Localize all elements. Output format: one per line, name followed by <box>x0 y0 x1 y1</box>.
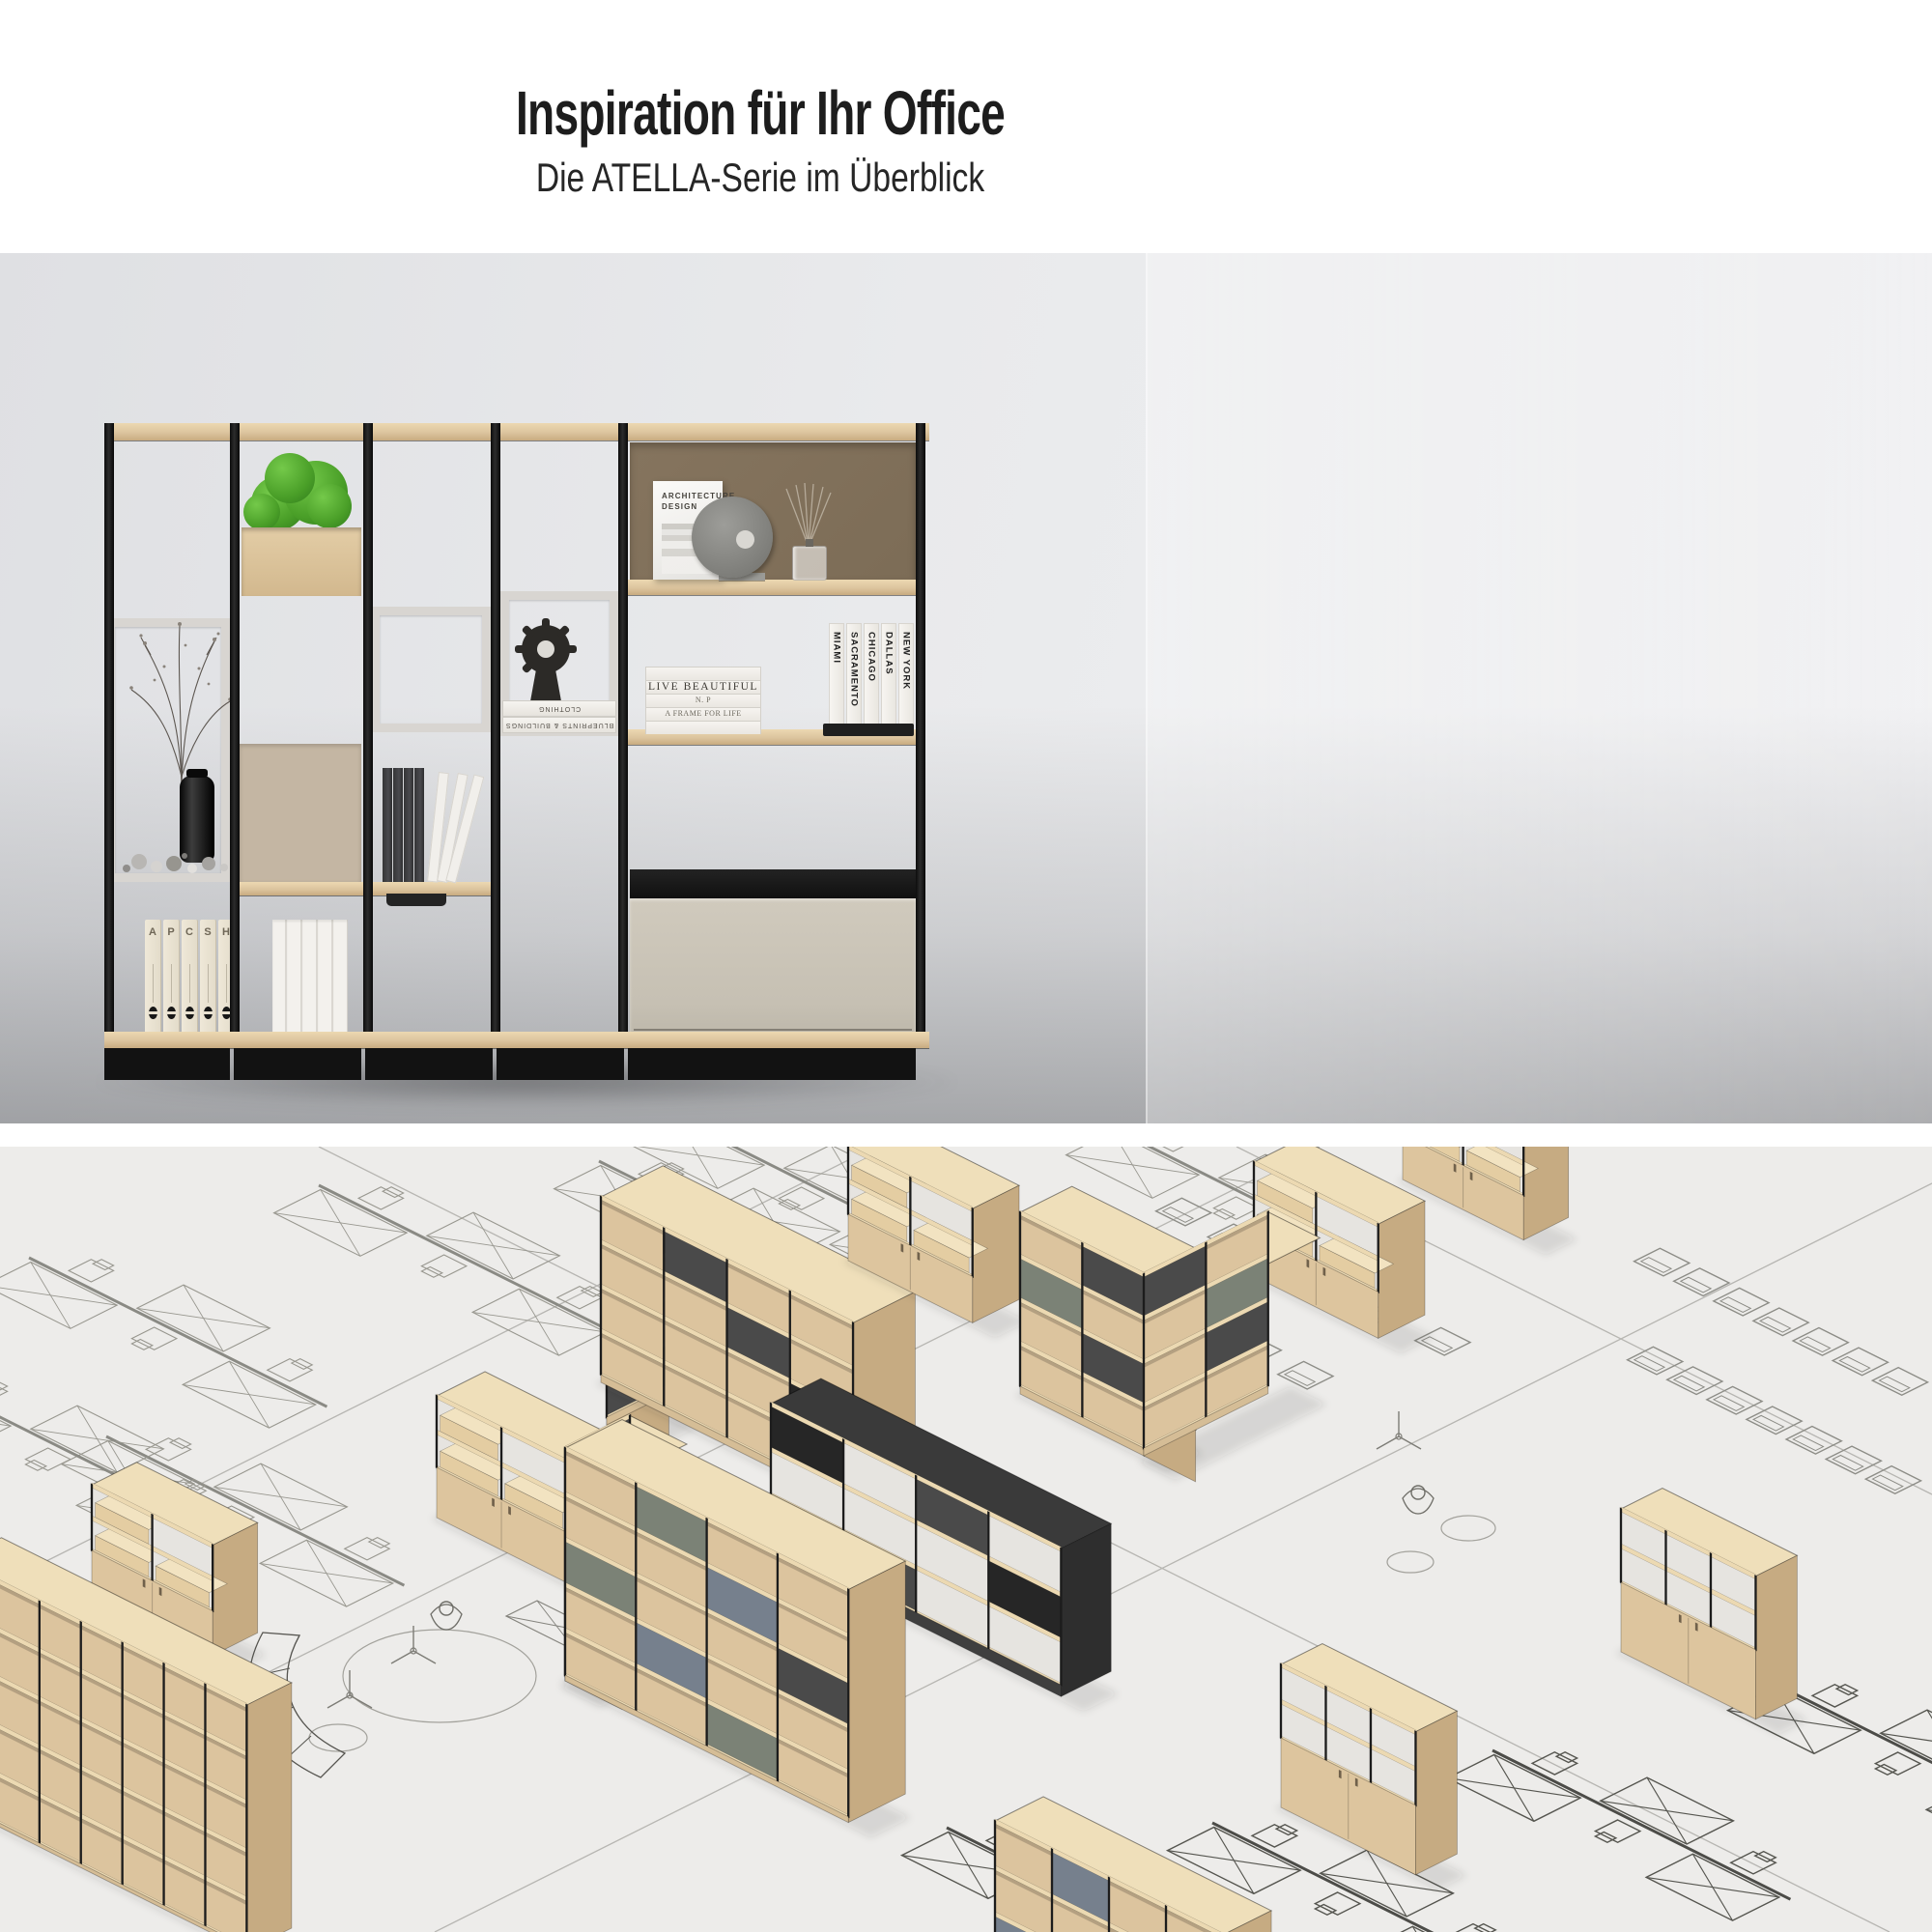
city-book: DALLAS <box>881 623 896 731</box>
city-book: SACRAMENTO <box>846 623 862 731</box>
frame-post <box>916 423 925 1048</box>
stacked-book-spine: A FRAME FOR LIFE <box>645 707 761 721</box>
vase <box>180 776 214 863</box>
page: { "header": { "title": "Inspiration für … <box>0 0 1932 1932</box>
floorplan-unit-shelf-cabinet-right <box>1616 1489 1807 1735</box>
binder: S <box>200 920 216 1032</box>
city-book: NEW YORK <box>898 623 914 731</box>
felt-panel-beige <box>240 744 361 882</box>
city-book: MIAMI <box>829 623 844 731</box>
binder: P <box>163 920 180 1032</box>
flat-book: BLUEPRINTS & BUILDINGS <box>502 717 616 733</box>
plinth <box>104 1048 230 1080</box>
bookend <box>823 724 914 736</box>
plinth <box>234 1048 361 1080</box>
stacked-book-spine: N. P <box>645 694 761 707</box>
book-stack: LIVE BEAUTIFULN. PA FRAME FOR LIFE <box>645 667 761 734</box>
flat-book-title: BLUEPRINTS & BUILDINGS <box>505 718 613 731</box>
dried-branches <box>122 612 236 784</box>
binder: A <box>145 920 161 1032</box>
cabinet-handle-rail <box>630 869 916 898</box>
stone-disc <box>692 497 773 578</box>
product-photo: CLOTHING BLUEPRINTS & BUILDINGS ARCHITEC… <box>0 253 1932 1123</box>
floorplan-svg <box>0 1147 1932 1932</box>
frame-post <box>491 423 500 1048</box>
stacked-book-spine: LIVE BEAUTIFUL <box>645 680 761 694</box>
frame-post <box>104 423 114 1048</box>
binder: C <box>182 920 198 1032</box>
frame-post <box>618 423 628 1048</box>
photo-seam <box>1146 253 1932 1123</box>
diffuser-reeds <box>779 483 838 547</box>
stacked-book-spine <box>645 721 761 734</box>
stacked-book-spine <box>645 667 761 680</box>
floorplan-illustration <box>0 1147 1932 1932</box>
hero-header: Inspiration für Ihr Office Die ATELLA-Se… <box>0 0 1520 253</box>
under-shelf-tray <box>386 894 446 906</box>
city-book: CHICAGO <box>864 623 879 731</box>
gear-sculpture <box>506 616 585 703</box>
shelf-base-board <box>104 1032 929 1048</box>
plinth <box>497 1048 624 1080</box>
plinth <box>628 1048 916 1080</box>
frame-post <box>230 423 240 1048</box>
diffuser-bottle <box>792 546 827 581</box>
pebbles <box>131 854 147 869</box>
grey-frame-cell <box>371 607 491 732</box>
shelf-board <box>626 580 920 595</box>
flat-books: CLOTHING BLUEPRINTS & BUILDINGS <box>502 700 616 733</box>
frame-post <box>363 423 373 1048</box>
planter-box <box>241 527 361 596</box>
magazine-files <box>383 765 460 882</box>
cabinet-front <box>630 898 916 1048</box>
plinth <box>365 1048 493 1080</box>
flat-book-title: CLOTHING <box>538 701 581 715</box>
page-subtitle: Die ATELLA-Serie im Überblick <box>152 155 1368 201</box>
floorplan-unit-shelf-cabinet-bottom <box>1276 1644 1467 1890</box>
flat-book: CLOTHING <box>502 700 616 717</box>
binder-row: APCSH <box>145 920 235 1032</box>
white-books-row <box>272 920 348 1032</box>
city-books: MIAMISACRAMENTOCHICAGODALLASNEW YORK <box>829 623 914 731</box>
page-title: Inspiration für Ihr Office <box>213 81 1307 145</box>
shelf-top-board <box>104 423 929 440</box>
